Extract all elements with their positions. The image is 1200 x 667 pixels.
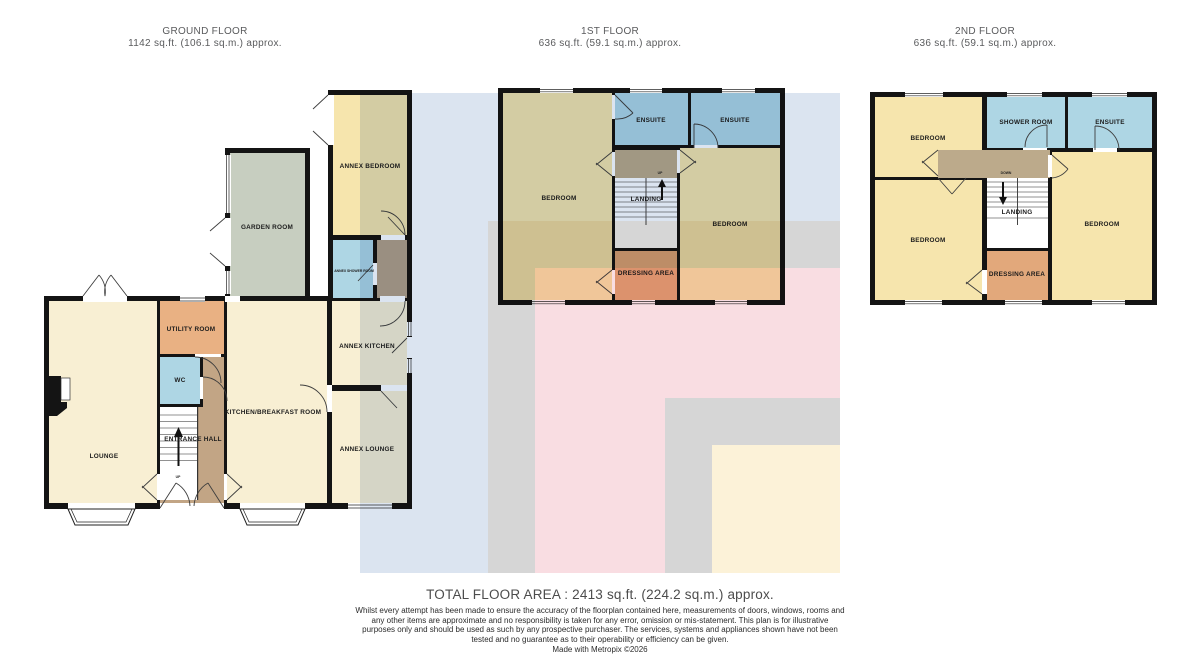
room-label-annex-lounge: ANNEX LOUNGE [340, 446, 395, 453]
room-label-annex-kitchen: ANNEX KITCHEN [339, 343, 395, 350]
metropix-credit: Made with Metropix ©2026 [355, 645, 845, 655]
first-floor-header: 1ST FLOOR 636 sq.ft. (59.1 sq.m.) approx… [450, 26, 770, 50]
room-annex-lobby [377, 240, 407, 298]
room-label-bedroom-left: BEDROOM [541, 195, 576, 202]
stairs-down-label: DOWN [1001, 171, 1012, 175]
total-floor-area: TOTAL FLOOR AREA : 2413 sq.ft. (224.2 sq… [0, 587, 1200, 602]
room-label-landing: LANDING [1002, 209, 1033, 216]
room-label-entrance-hall: ENTRANCE HALL [164, 436, 222, 443]
stairs-up-label: UP [176, 475, 181, 479]
first-floor-area: 636 sq.ft. (59.1 sq.m.) approx. [450, 38, 770, 50]
room-label-dressing-area: DRESSING AREA [618, 270, 674, 277]
first-floor-plan: BEDROOM ENSUITE ENSUITE LANDING BEDROOM … [495, 85, 790, 310]
room-label-wc: WC [174, 377, 185, 384]
second-floor-title: 2ND FLOOR [820, 26, 1150, 38]
floorplan-page: GROUND FLOOR 1142 sq.ft. (106.1 sq.m.) a… [0, 0, 1200, 667]
room-label-bedroom-bottom-left: BEDROOM [910, 237, 945, 244]
stairs-up-label: UP [658, 171, 663, 175]
room-label-annex-shower-room: ANNEX SHOWER ROOM [334, 269, 374, 273]
room-label-kitchen-breakfast: KITCHEN/BREAKFAST ROOM [225, 409, 321, 416]
second-rooms [875, 97, 1152, 300]
room-label-garden-room: GARDEN ROOM [241, 224, 293, 231]
disclaimer: Whilst every attempt has been made to en… [355, 606, 845, 655]
ground-floor-area: 1142 sq.ft. (106.1 sq.m.) approx. [40, 38, 370, 50]
room-label-dressing-area: DRESSING AREA [989, 271, 1045, 278]
second-floor-plan: BEDROOM SHOWER ROOM ENSUITE LANDING BEDR… [865, 85, 1165, 310]
room-label-bedroom-top-left: BEDROOM [910, 135, 945, 142]
second-floor-header: 2ND FLOOR 636 sq.ft. (59.1 sq.m.) approx… [820, 26, 1150, 50]
disclaimer-text: Whilst every attempt has been made to en… [355, 606, 844, 644]
landing-top [615, 150, 677, 178]
room-label-landing: LANDING [631, 196, 662, 203]
background-band-cream [712, 445, 840, 573]
second-floor-area: 636 sq.ft. (59.1 sq.m.) approx. [820, 38, 1150, 50]
room-label-ensuite: ENSUITE [1095, 119, 1125, 126]
bay-window-kitchen [240, 509, 305, 525]
room-kitchen-breakfast [227, 301, 327, 503]
room-label-shower-room: SHOWER ROOM [999, 119, 1052, 126]
room-label-ensuite-right: ENSUITE [720, 117, 750, 124]
first-floor-title: 1ST FLOOR [450, 26, 770, 38]
room-label-annex-bedroom: ANNEX BEDROOM [340, 163, 401, 170]
landing-top [938, 150, 1050, 178]
room-label-bedroom-right: BEDROOM [712, 221, 747, 228]
room-label-ensuite-left: ENSUITE [636, 117, 666, 124]
bay-window-lounge [68, 509, 135, 525]
ground-floor-title: GROUND FLOOR [40, 26, 370, 38]
ground-floor-plan: ANNEX BEDROOM GARDEN ROOM ANNEX SHOWER R… [40, 85, 420, 535]
room-label-utility-room: UTILITY ROOM [167, 326, 216, 333]
room-label-bedroom-right: BEDROOM [1084, 221, 1119, 228]
ground-floor-header: GROUND FLOOR 1142 sq.ft. (106.1 sq.m.) a… [40, 26, 370, 50]
room-label-lounge: LOUNGE [90, 453, 119, 460]
